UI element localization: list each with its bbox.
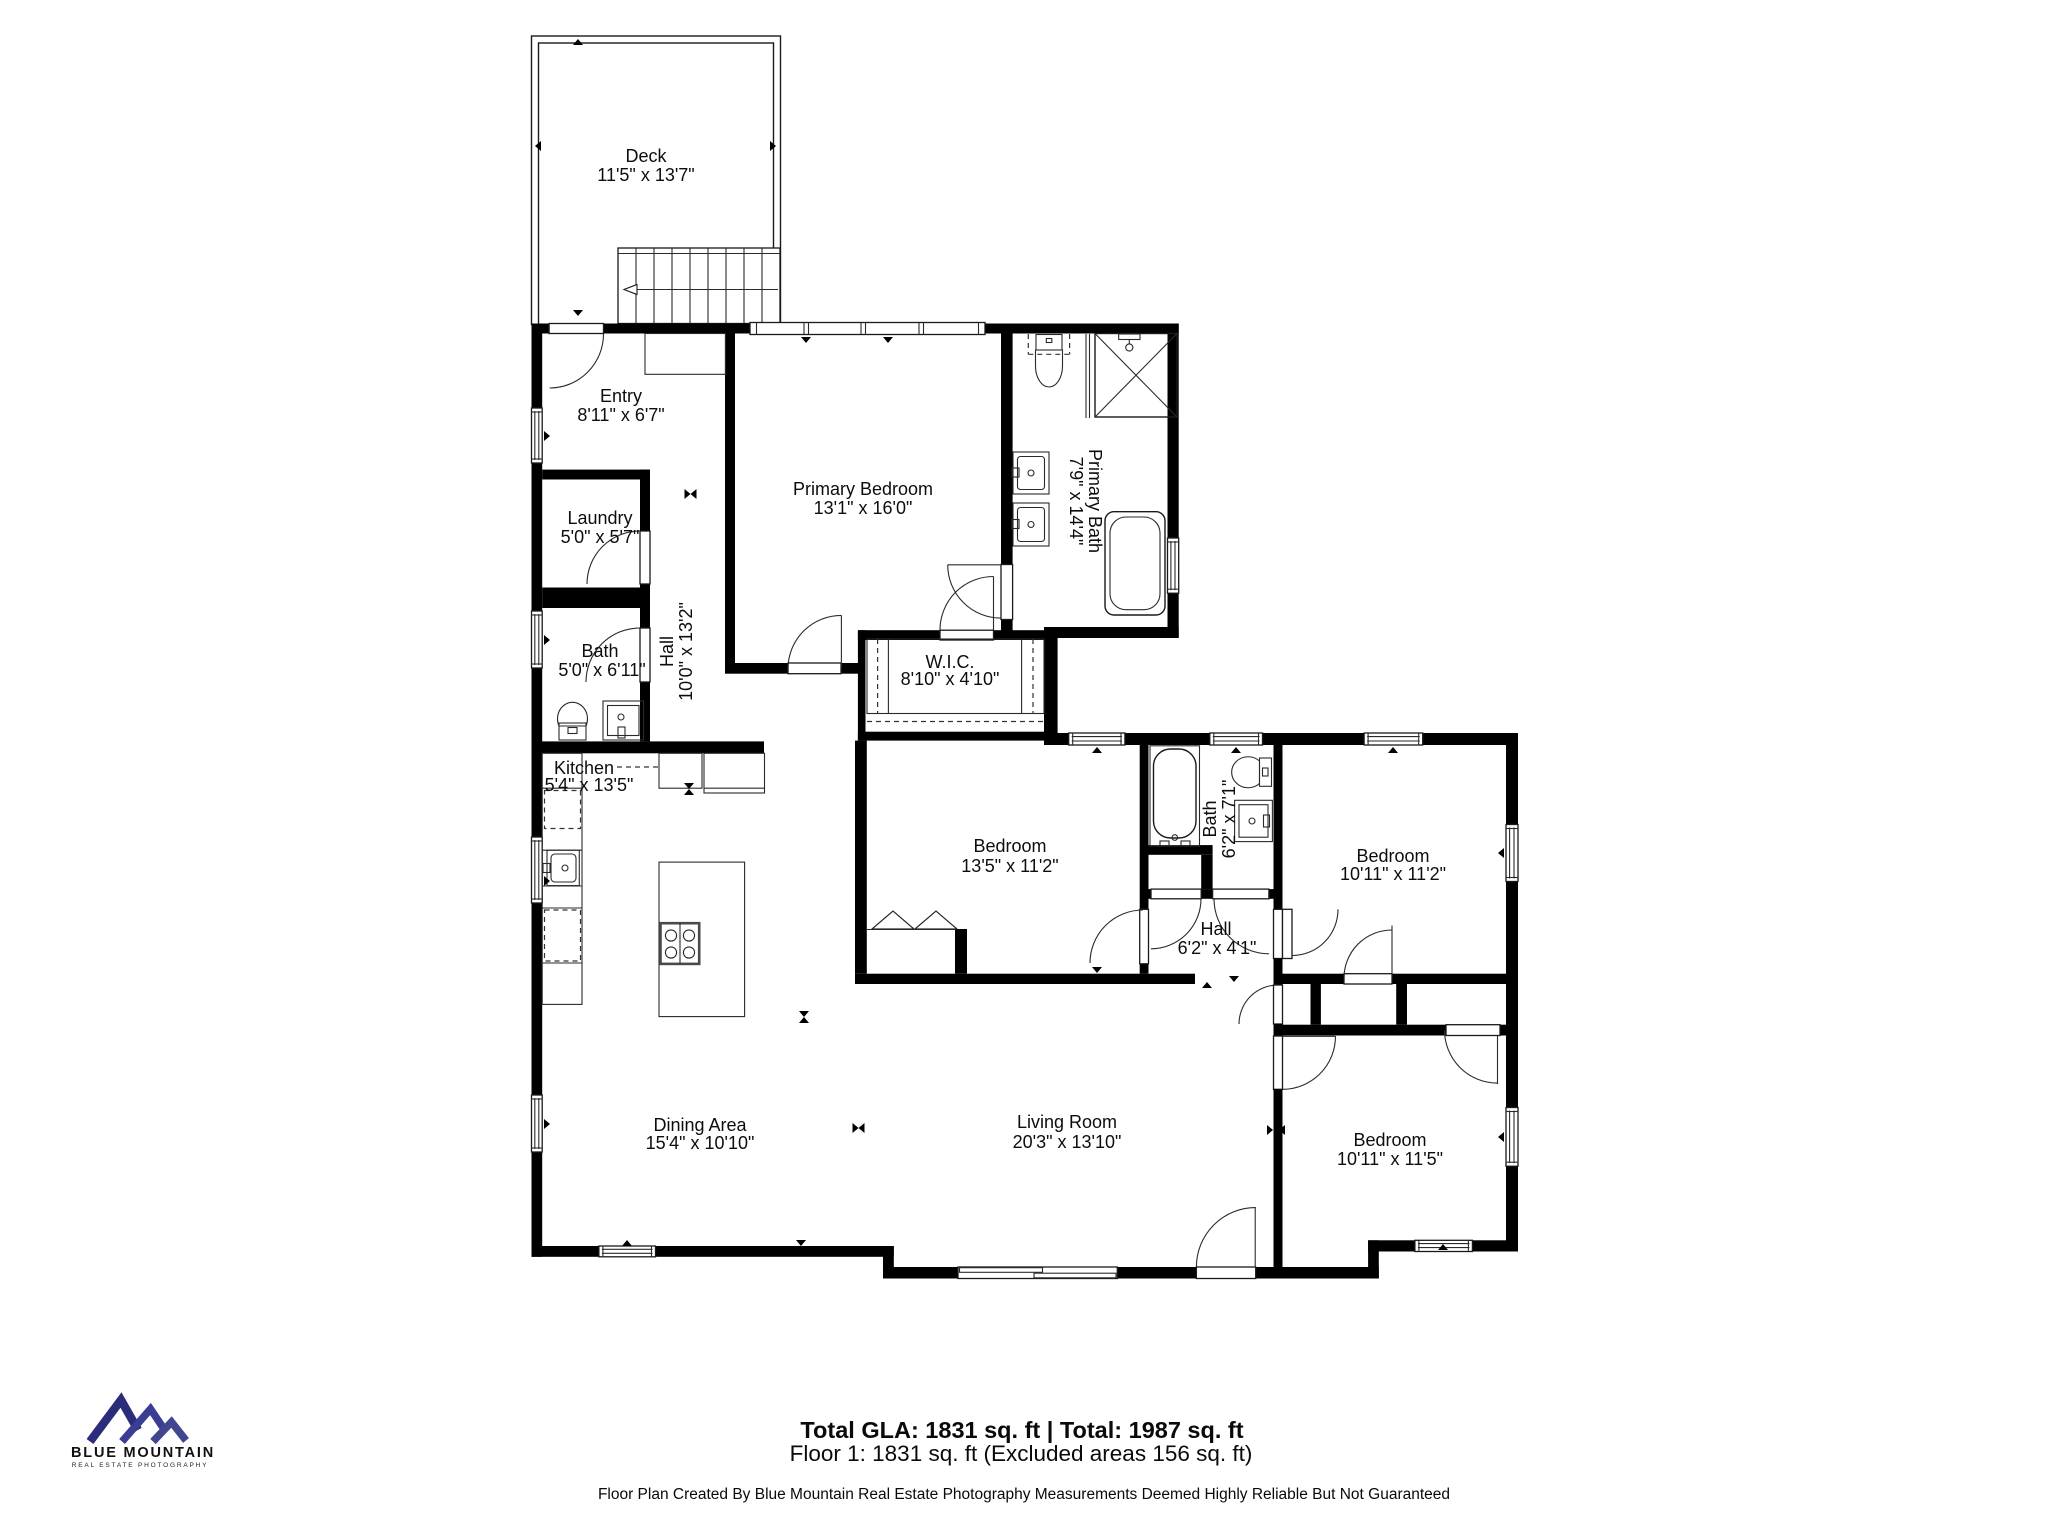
svg-text:Total GLA: 1831 sq. ft | Total: Total GLA: 1831 sq. ft | Total: 1987 sq.…	[800, 1417, 1243, 1443]
svg-text:6'2" x 4'1": 6'2" x 4'1"	[1178, 938, 1257, 958]
svg-text:10'11" x 11'2": 10'11" x 11'2"	[1340, 864, 1446, 884]
svg-text:Bath: Bath	[581, 641, 618, 661]
svg-text:15'4" x 10'10": 15'4" x 10'10"	[646, 1133, 755, 1153]
svg-text:Bedroom: Bedroom	[1353, 1130, 1426, 1150]
svg-text:7'9" x 14'4": 7'9" x 14'4"	[1066, 457, 1086, 546]
svg-text:REAL ESTATE PHOTOGRAPHY: REAL ESTATE PHOTOGRAPHY	[72, 1462, 209, 1469]
svg-text:Dining Area: Dining Area	[653, 1115, 747, 1135]
svg-text:20'3" x 13'10": 20'3" x 13'10"	[1013, 1132, 1122, 1152]
svg-text:Primary Bath: Primary Bath	[1085, 449, 1105, 553]
svg-text:Primary Bedroom: Primary Bedroom	[793, 479, 933, 499]
svg-text:5'4" x 13'5": 5'4" x 13'5"	[545, 775, 634, 795]
svg-text:5'0" x 5'7": 5'0" x 5'7"	[561, 527, 640, 547]
svg-text:Bath: Bath	[1200, 800, 1220, 837]
svg-text:Floor 1: 1831 sq. ft (Excluded: Floor 1: 1831 sq. ft (Excluded areas 156…	[790, 1441, 1253, 1466]
svg-text:13'1" x 16'0": 13'1" x 16'0"	[814, 498, 913, 518]
svg-text:BLUE MOUNTAIN: BLUE MOUNTAIN	[71, 1445, 215, 1461]
svg-text:8'11" x 6'7": 8'11" x 6'7"	[577, 405, 664, 425]
svg-text:10'11" x 11'5": 10'11" x 11'5"	[1337, 1149, 1443, 1169]
svg-text:Living Room: Living Room	[1017, 1112, 1117, 1132]
svg-text:6'2" x 7'1": 6'2" x 7'1"	[1219, 780, 1239, 859]
svg-text:Bedroom: Bedroom	[973, 836, 1046, 856]
svg-text:Laundry: Laundry	[567, 508, 632, 528]
svg-text:13'5" x 11'2": 13'5" x 11'2"	[961, 856, 1058, 876]
svg-text:Floor Plan Created By Blue Mou: Floor Plan Created By Blue Mountain Real…	[598, 1486, 1450, 1503]
svg-text:Bedroom: Bedroom	[1356, 846, 1429, 866]
svg-text:8'10" x 4'10": 8'10" x 4'10"	[901, 669, 1000, 689]
svg-text:Deck: Deck	[625, 146, 667, 166]
svg-text:Hall: Hall	[1200, 919, 1231, 939]
svg-text:Hall: Hall	[657, 636, 677, 667]
svg-text:Entry: Entry	[600, 386, 642, 406]
svg-text:5'0" x 6'11": 5'0" x 6'11"	[558, 660, 645, 680]
svg-text:11'5" x 13'7": 11'5" x 13'7"	[597, 165, 694, 185]
svg-text:10'0" x 13'2": 10'0" x 13'2"	[676, 602, 696, 701]
